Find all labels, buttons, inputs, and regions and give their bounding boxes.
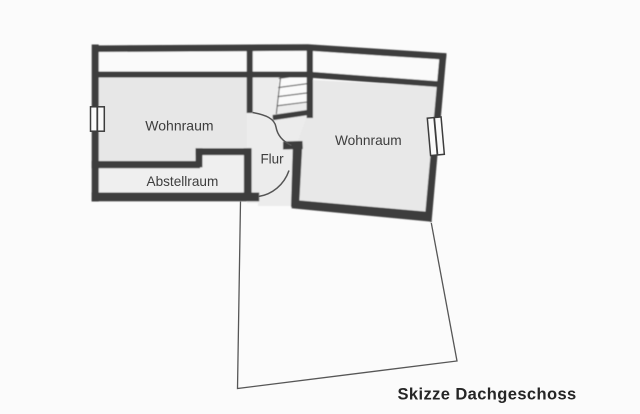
svg-text:Wohnraum: Wohnraum [145, 117, 213, 133]
svg-text:Skizze Dachgeschoss: Skizze Dachgeschoss [398, 386, 577, 404]
svg-text:Abstellraum: Abstellraum [147, 174, 219, 189]
svg-text:Flur: Flur [261, 151, 285, 166]
svg-text:Wohnraum: Wohnraum [335, 133, 402, 148]
